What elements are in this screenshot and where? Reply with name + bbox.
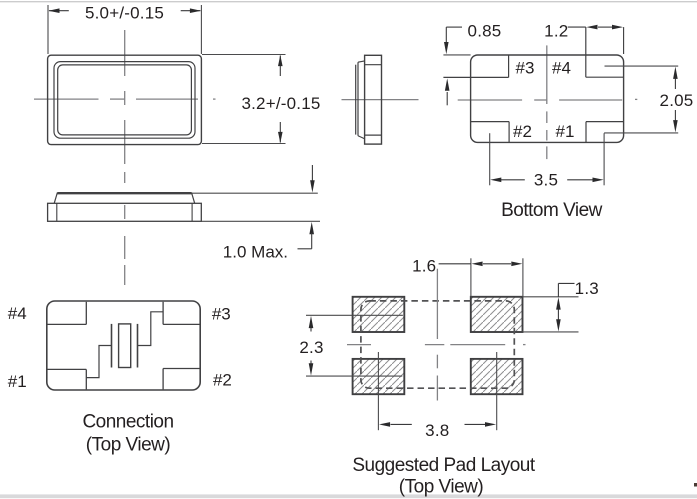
svg-text:(Top View): (Top View) [86,434,171,455]
svg-text:Suggested Pad Layout: Suggested Pad Layout [352,455,535,476]
svg-text:#1: #1 [556,122,575,141]
svg-text:0.85: 0.85 [468,22,502,41]
svg-text:Bottom View: Bottom View [501,200,603,221]
svg-text:(Top View): (Top View) [399,476,484,497]
svg-text:1.6: 1.6 [412,257,436,276]
svg-text:3.8: 3.8 [425,421,449,440]
svg-text:1.2: 1.2 [544,22,568,41]
svg-text:1.3: 1.3 [575,279,599,298]
svg-text:3.5: 3.5 [534,171,558,190]
svg-text:#2: #2 [213,371,232,390]
svg-text:2.05: 2.05 [660,91,694,110]
svg-text:#3: #3 [516,59,535,78]
svg-text:3.2+/-0.15: 3.2+/-0.15 [241,94,320,113]
svg-text:#1: #1 [8,372,27,391]
svg-text:Connection: Connection [82,411,173,432]
svg-text:#2: #2 [513,122,532,141]
svg-text:#4: #4 [552,59,571,78]
svg-text:#3: #3 [212,304,231,323]
svg-text:2.3: 2.3 [299,338,323,357]
svg-text:5.0+/-0.15: 5.0+/-0.15 [85,4,164,23]
svg-text:1.0 Max.: 1.0 Max. [223,243,288,262]
svg-text:#4: #4 [8,304,27,323]
